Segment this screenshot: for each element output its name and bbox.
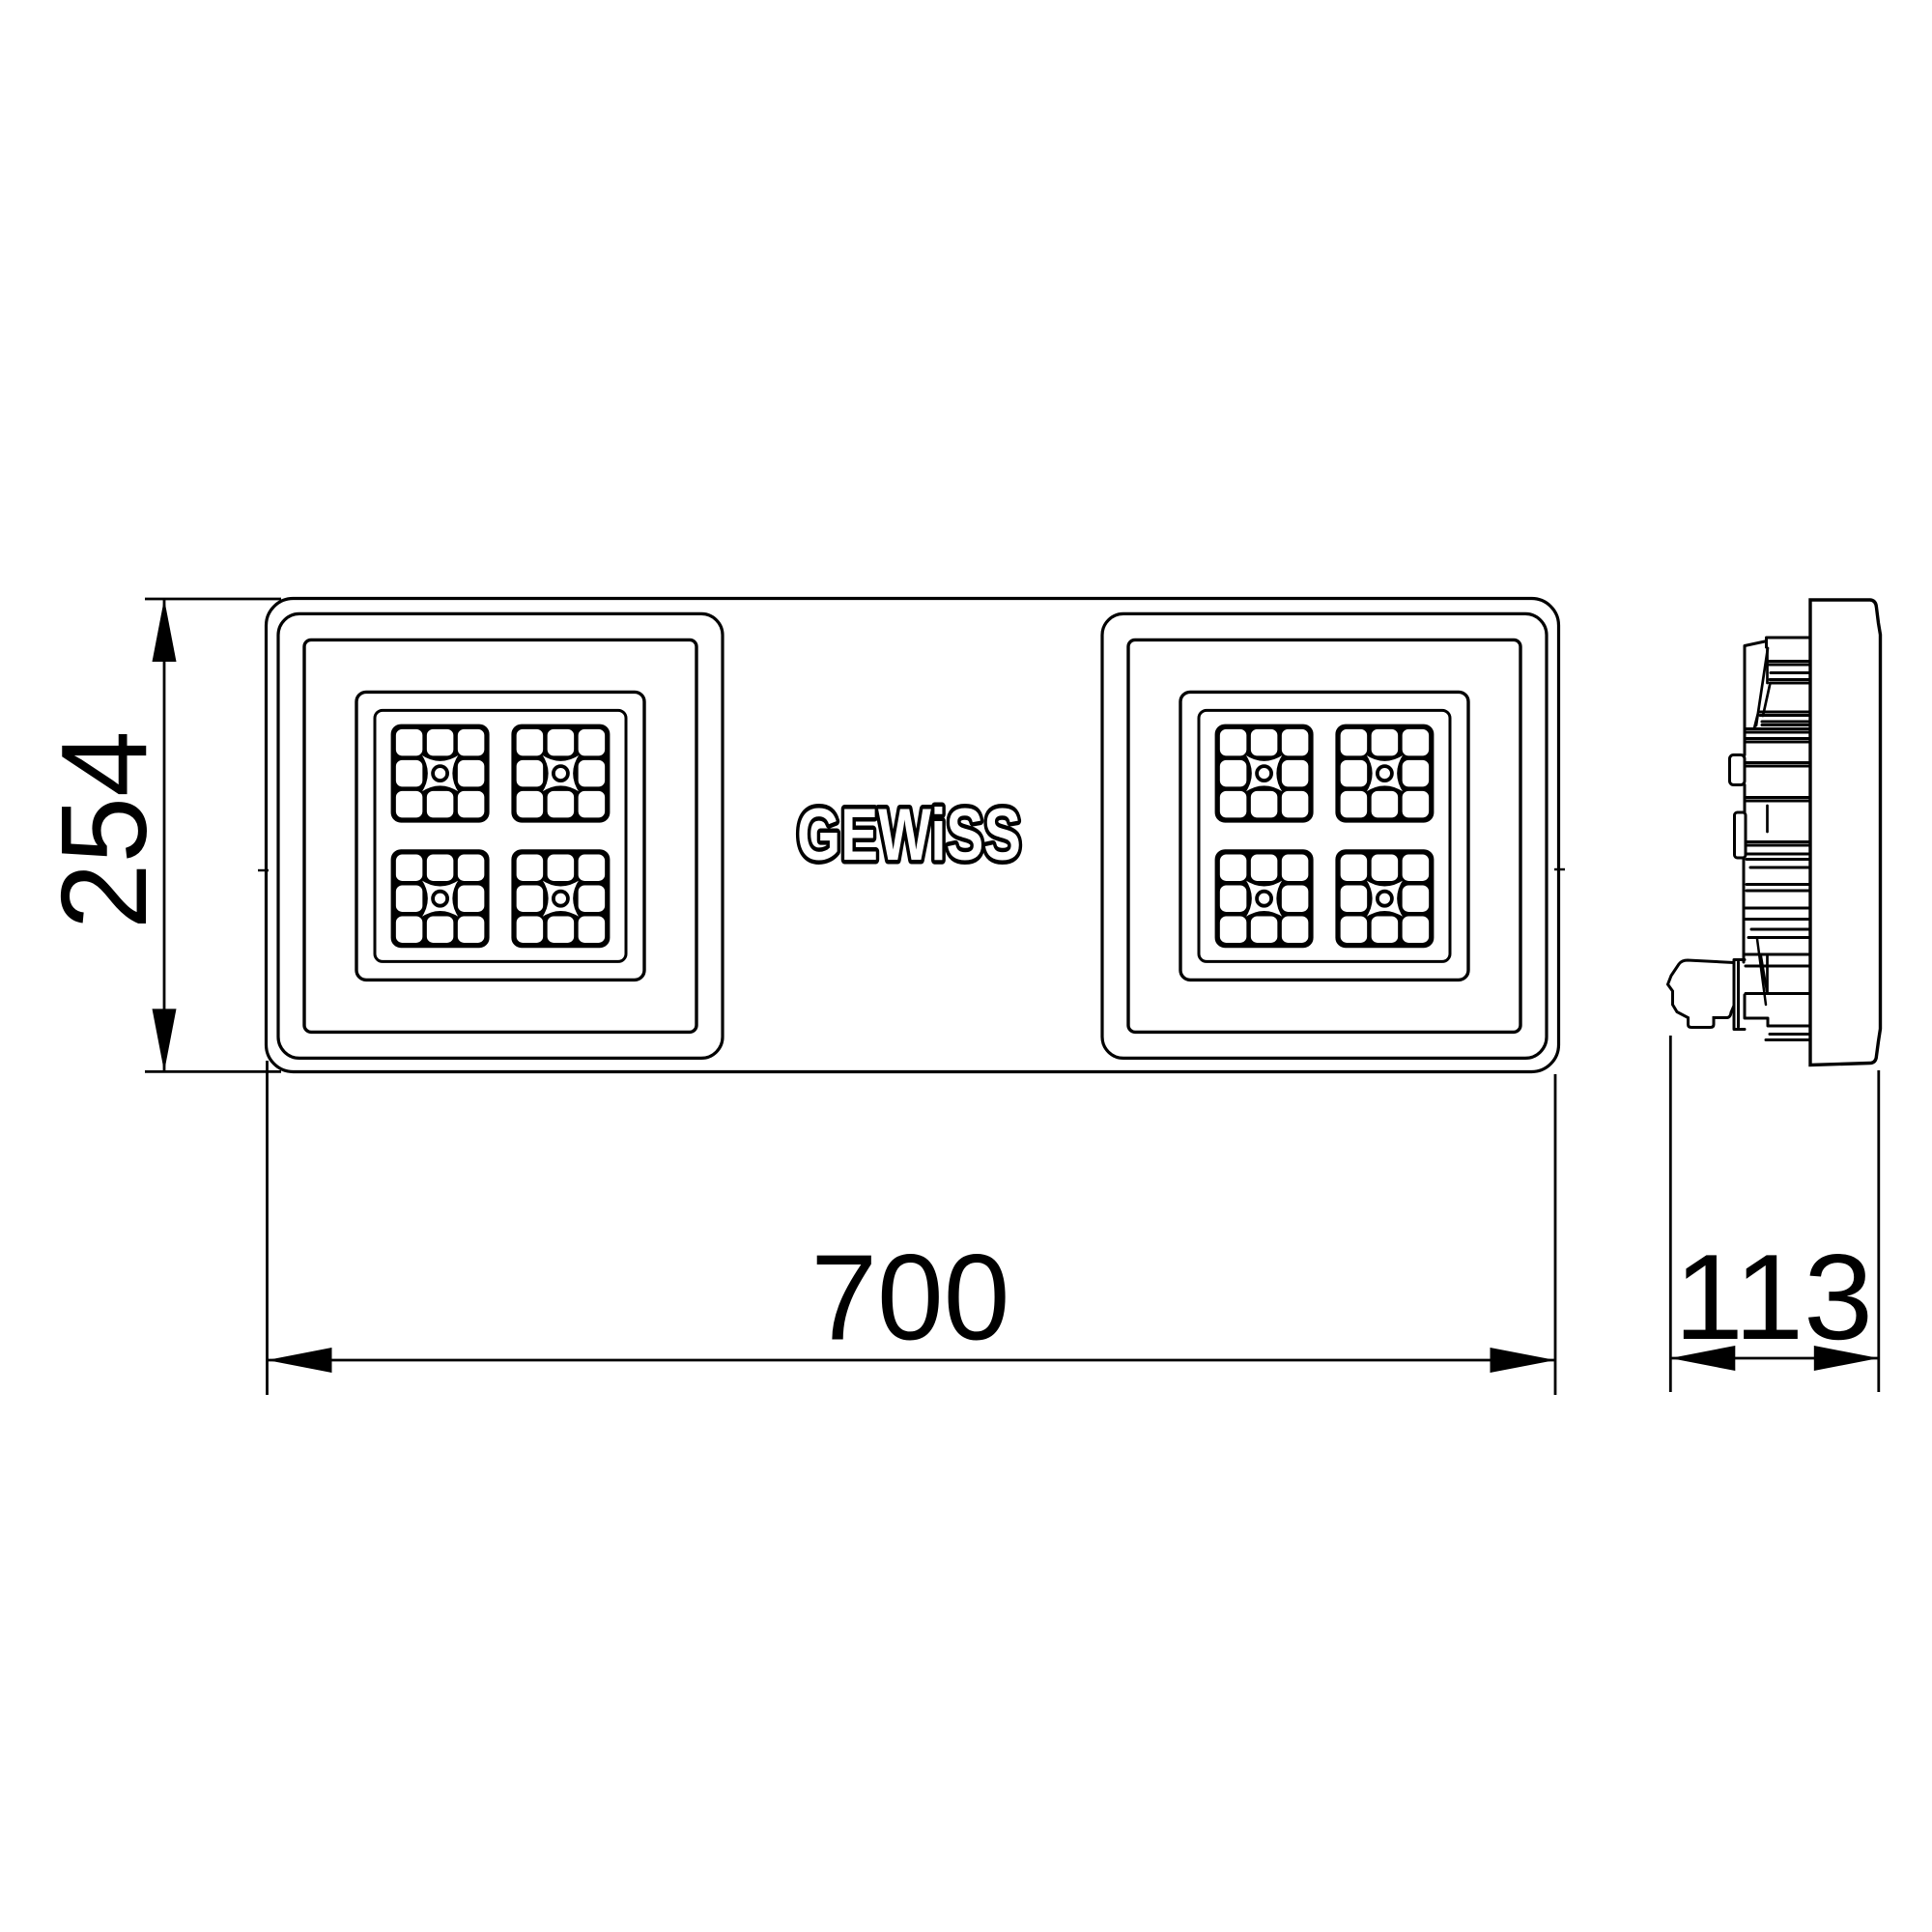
svg-text:700: 700 bbox=[810, 1230, 1009, 1366]
svg-text:GEWiSS: GEWiSS bbox=[797, 794, 1021, 876]
svg-text:254: 254 bbox=[36, 730, 172, 929]
svg-text:113: 113 bbox=[1674, 1229, 1873, 1365]
